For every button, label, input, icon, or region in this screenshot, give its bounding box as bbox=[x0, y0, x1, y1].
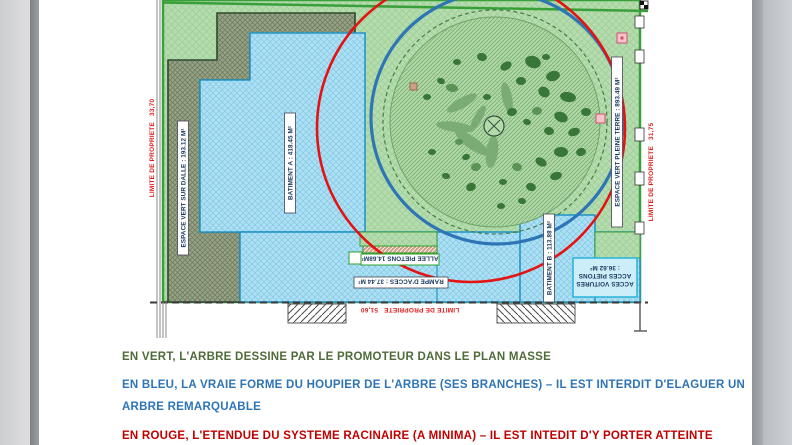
svg-text:BATIMENT A : 418.45 M²: BATIMENT A : 418.45 M² bbox=[288, 126, 295, 200]
svg-text:: 36.62 M²: : 36.62 M² bbox=[590, 264, 620, 271]
label-espace-vert-sur-dalle: ESPACE VERT SUR DALLE : 193.12 M² bbox=[178, 121, 189, 255]
limite-propriete-right: LIMITE DE PROPRIETE 31,75 bbox=[648, 123, 655, 222]
svg-text:ESPACE VERT PLEINE TERRE : 893: ESPACE VERT PLEINE TERRE : 893.49 M² bbox=[615, 77, 622, 206]
svg-text:ESPACE VERT SUR DALLE : 193.12: ESPACE VERT SUR DALLE : 193.12 M² bbox=[181, 129, 188, 248]
label-rampe-acces: RAMPE D'ACCES : 37.44 M² bbox=[354, 277, 448, 288]
tree-trunk bbox=[484, 116, 504, 136]
pink-marker-icon bbox=[617, 33, 627, 43]
hatched-area-right bbox=[497, 304, 575, 323]
svg-text:ALLEE PIETONS 14.68M²: ALLEE PIETONS 14.68M² bbox=[362, 255, 439, 262]
limite-propriete-left: LIMITE DE PROPRIETE 33,70 bbox=[149, 99, 156, 198]
hatched-area-left bbox=[288, 304, 346, 323]
annotation-en-rouge: EN ROUGE, L'ETENDUE DU SYSTEME RACINAIRE… bbox=[122, 430, 713, 442]
label-batiment-b: BATIMENT B : 113.88 M² bbox=[544, 214, 555, 302]
document-viewer: { "page": { "plan": { "labels": { "limit… bbox=[0, 0, 792, 445]
green-patch-right bbox=[595, 232, 640, 258]
tan-marker-icon bbox=[410, 83, 417, 90]
checkered-marker-icon bbox=[640, 1, 648, 9]
annotation-en-bleu-line1: EN BLEU, LA VRAIE FORME DU HOUPIER DE L'… bbox=[122, 379, 745, 391]
label-allee-pietons: ALLEE PIETONS 14.68M² bbox=[361, 254, 439, 265]
svg-text:BATIMENT B : 113.88 M²: BATIMENT B : 113.88 M² bbox=[547, 221, 554, 295]
property-boundary-lines bbox=[157, 0, 160, 338]
site-plan-drawing: ESPACE VERT SUR DALLE : 193.12 M² BATIME… bbox=[0, 0, 792, 345]
annotation-en-vert: EN VERT, L'ARBRE DESSINE PAR LE PROMOTEU… bbox=[122, 351, 551, 363]
svg-text:ACCES VOITURES: ACCES VOITURES bbox=[576, 280, 633, 287]
annotation-en-bleu-line2: ARBRE REMARQUABLE bbox=[122, 401, 261, 413]
small-white-box bbox=[349, 252, 362, 264]
label-espace-vert-pleine-terre: ESPACE VERT PLEINE TERRE : 893.49 M² bbox=[612, 57, 623, 227]
svg-text:RAMPE D'ACCES : 37.44 M²: RAMPE D'ACCES : 37.44 M² bbox=[358, 278, 443, 285]
svg-text:ACCES PIETONS: ACCES PIETONS bbox=[579, 272, 632, 279]
label-batiment-a: BATIMENT A : 418.45 M² bbox=[285, 113, 296, 213]
pink-marker2-icon bbox=[596, 114, 605, 123]
limite-propriete-bottom: LIMITE DE PROPRIETE 51,60 bbox=[361, 306, 460, 313]
